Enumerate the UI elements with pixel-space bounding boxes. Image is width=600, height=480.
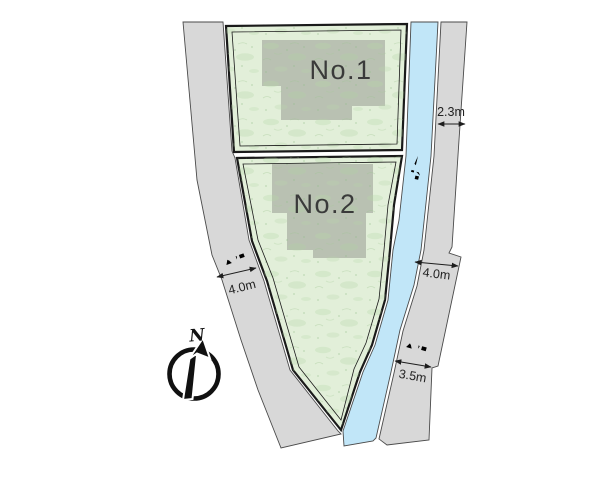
land-plot-diagram: No.1 No.2 2.3m 4.0m 3.5m 4.0m N bbox=[0, 0, 600, 480]
dimension-right-top: 2.3m bbox=[437, 105, 465, 119]
compass-north-icon: N bbox=[170, 325, 219, 400]
compass-north-label: N bbox=[187, 325, 207, 346]
plot-2-label: No.2 bbox=[293, 189, 356, 219]
plot-1-label: No.1 bbox=[309, 55, 372, 85]
site-plan-svg: No.1 No.2 2.3m 4.0m 3.5m 4.0m N bbox=[0, 0, 600, 480]
